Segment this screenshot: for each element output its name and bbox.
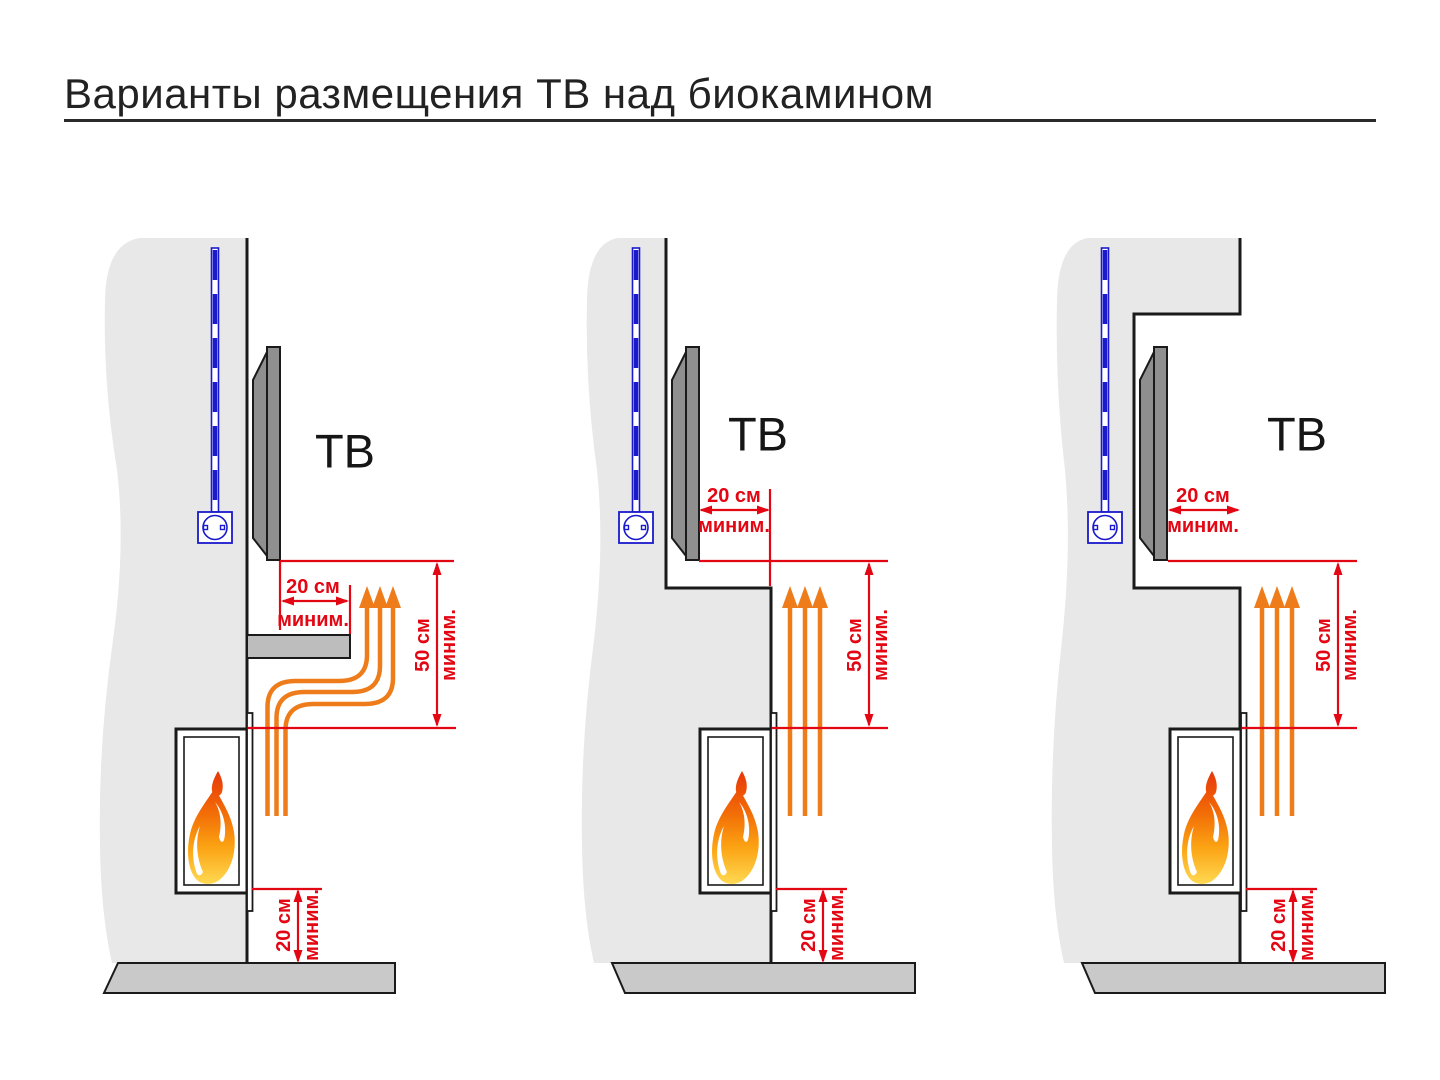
dimension-qualifier: миним. — [1296, 889, 1318, 961]
panel-right: ТВ 20 см миним. — [1052, 238, 1385, 993]
fireplace-glass — [771, 713, 777, 911]
power-cable — [212, 248, 219, 512]
heat-arrowhead — [797, 586, 813, 608]
dimension-value: 20 см — [1176, 485, 1230, 507]
dimension-qualifier: миним. — [698, 515, 770, 537]
dimension-value: 20 см — [707, 485, 761, 507]
dimension-value: 50 см — [1313, 618, 1335, 672]
fireplace — [176, 713, 253, 911]
dimension-arrowhead — [1334, 562, 1343, 575]
dimension-value: 20 см — [273, 898, 295, 952]
fireplace — [700, 713, 777, 911]
dimension-arrowhead — [865, 714, 874, 727]
tv-panel — [1154, 347, 1167, 560]
heat-arrowhead — [782, 586, 798, 608]
floor — [612, 963, 915, 993]
fireplace-glass — [247, 713, 253, 911]
tv-back — [253, 352, 267, 556]
front-clearance-dimension: 20 см миним. — [1167, 485, 1240, 537]
fireplace-glass — [1241, 713, 1247, 911]
diagram-svg: ТВ 20 см миним. — [0, 0, 1440, 1080]
mantel-shelf — [247, 635, 350, 658]
outlet-pin-right — [221, 526, 225, 530]
outlet-pin-right — [1111, 526, 1115, 530]
heat-arrowhead — [1284, 586, 1300, 608]
heat-arrowhead — [1269, 586, 1285, 608]
dimension-value: 20 см — [798, 898, 820, 952]
floor-clearance-dimension: 20 см миним. — [1246, 889, 1318, 963]
tv-side-view — [1140, 347, 1167, 560]
dimension-arrowhead — [433, 562, 442, 575]
fireplace — [1170, 713, 1247, 911]
heat-arrows — [782, 586, 828, 816]
panel-center: ТВ 20 см миним. — [582, 238, 915, 993]
dimension-value: 50 см — [412, 618, 434, 672]
outlet-pin-left — [204, 526, 208, 530]
heat-arrowhead — [359, 586, 375, 608]
dimension-qualifier: миним. — [438, 609, 460, 681]
power-cable — [633, 248, 640, 512]
power-outlet-icon — [1088, 512, 1122, 543]
heat-arrowhead — [385, 586, 401, 608]
heat-arrowhead — [1254, 586, 1270, 608]
dimension-value: 20 см — [1268, 898, 1290, 952]
dimension-qualifier: миним. — [301, 889, 323, 961]
dimension-arrowhead — [865, 562, 874, 575]
tv-side-view — [253, 347, 280, 560]
outlet-pin-left — [1094, 526, 1098, 530]
front-clearance-dimension: 20 см миним. — [698, 485, 770, 586]
tv-panel — [686, 347, 699, 560]
floor-clearance-dimension: 20 см миним. — [252, 889, 323, 963]
dimension-value: 20 см — [286, 576, 340, 598]
outlet-pin-left — [625, 526, 629, 530]
tv-back — [1140, 352, 1154, 556]
dimension-qualifier: миним. — [1167, 515, 1239, 537]
outlet-pin-right — [642, 526, 646, 530]
power-outlet-icon — [198, 512, 232, 543]
dimension-arrowhead — [1334, 714, 1343, 727]
heat-arrowhead — [812, 586, 828, 608]
tv-side-view — [672, 347, 699, 560]
dimension-qualifier: миним. — [870, 609, 892, 681]
floor — [104, 963, 395, 993]
panel-left: ТВ 20 см миним. — [100, 238, 460, 993]
tv-label: ТВ — [315, 425, 375, 478]
dimension-qualifier: миним. — [1339, 609, 1361, 681]
heat-arrows — [1254, 586, 1300, 816]
heat-arrowhead — [372, 586, 388, 608]
floor-clearance-dimension: 20 см миним. — [776, 889, 848, 963]
dimension-qualifier: миним. — [277, 609, 349, 631]
infographic-canvas: Варианты размещения ТВ над биокамином — [0, 0, 1440, 1080]
power-outlet-icon — [619, 512, 653, 543]
tv-label: ТВ — [1267, 408, 1327, 461]
dimension-qualifier: миним. — [826, 889, 848, 961]
power-cable — [1102, 248, 1109, 512]
floor — [1082, 963, 1385, 993]
dimension-arrowhead — [433, 714, 442, 727]
tv-label: ТВ — [728, 408, 788, 461]
dimension-value: 50 см — [844, 618, 866, 672]
tv-back — [672, 352, 686, 556]
tv-panel — [267, 347, 280, 560]
